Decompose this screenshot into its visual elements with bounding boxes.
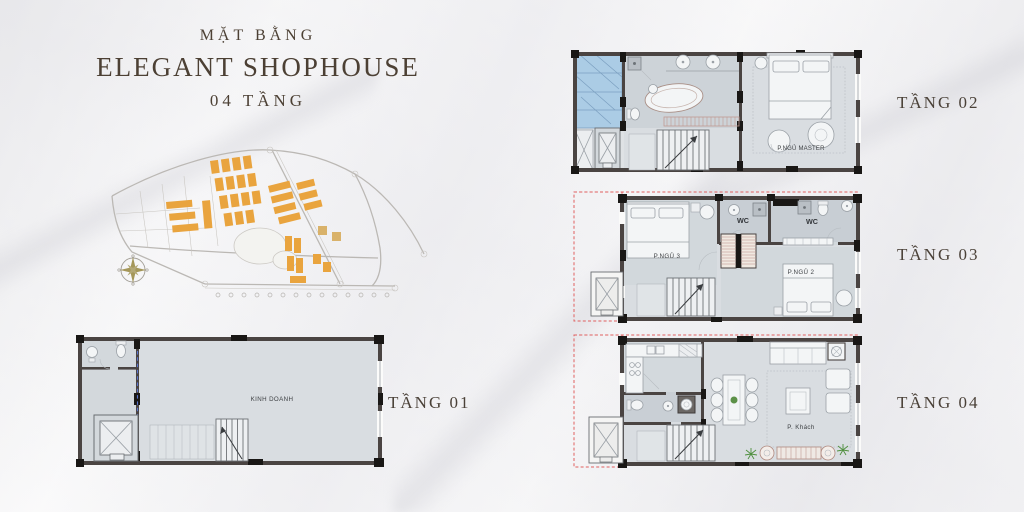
floor-2-label: TẦNG 02	[897, 93, 979, 113]
floor-plan-3: P.NGỦ 3 WC WC	[571, 190, 862, 324]
stairs-floor2	[629, 130, 709, 170]
floor-3-label: TẦNG 03	[897, 245, 979, 265]
room-label-bed2: P.NGỦ 2	[788, 269, 815, 276]
fridge	[679, 344, 697, 357]
compass-icon	[118, 255, 148, 285]
room-label-wc2: WC	[806, 217, 818, 226]
skylight-glass	[575, 54, 622, 128]
room-label-living: P. Khách	[787, 424, 815, 431]
brochure-page: MẶT BẰNG ELEGANT SHOPHOUSE 04 TẦNG TẦNG …	[0, 0, 1024, 512]
roads	[112, 147, 427, 291]
room-label-wc1: WC	[737, 216, 749, 225]
room-label-master: P.NGỦ MASTER	[777, 145, 825, 152]
elevator-floor4	[589, 417, 623, 463]
page-title: ELEGANT SHOPHOUSE	[58, 52, 458, 83]
washing-machine	[678, 396, 695, 413]
table-plant	[731, 397, 738, 404]
top-column	[737, 336, 753, 342]
floor-plan-2: P.NGỦ MASTER	[571, 49, 862, 175]
room-label-business: KINH DOANH	[251, 396, 294, 403]
tv-console	[828, 343, 845, 360]
title-floor-count: 04 TẦNG	[58, 91, 458, 111]
elevator-floor3	[591, 272, 623, 316]
armchair	[826, 393, 850, 413]
floor-1-label: TẦNG 01	[388, 393, 470, 413]
street-trees	[216, 293, 389, 297]
floor-plan-1: KINH DOANH	[76, 333, 384, 471]
entry-column	[231, 335, 247, 341]
void-and-elevator-floor2	[575, 128, 620, 170]
title-block: MẶT BẰNG ELEGANT SHOPHOUSE 04 TẦNG	[58, 27, 458, 111]
stairs-floor1	[150, 419, 248, 461]
dining-area	[711, 375, 758, 425]
floor-plan-4: P. Khách	[571, 333, 862, 470]
floor-4-label: TẦNG 04	[897, 393, 979, 413]
site-master-plan	[100, 136, 432, 314]
wc-niche	[773, 199, 799, 206]
title-subtitle: MẶT BẰNG	[58, 27, 458, 45]
room-label-bed3: P.NGỦ 3	[654, 253, 681, 260]
elevator-floor1	[94, 415, 138, 461]
upper-stair-strips	[721, 234, 756, 268]
armchair	[826, 369, 850, 389]
